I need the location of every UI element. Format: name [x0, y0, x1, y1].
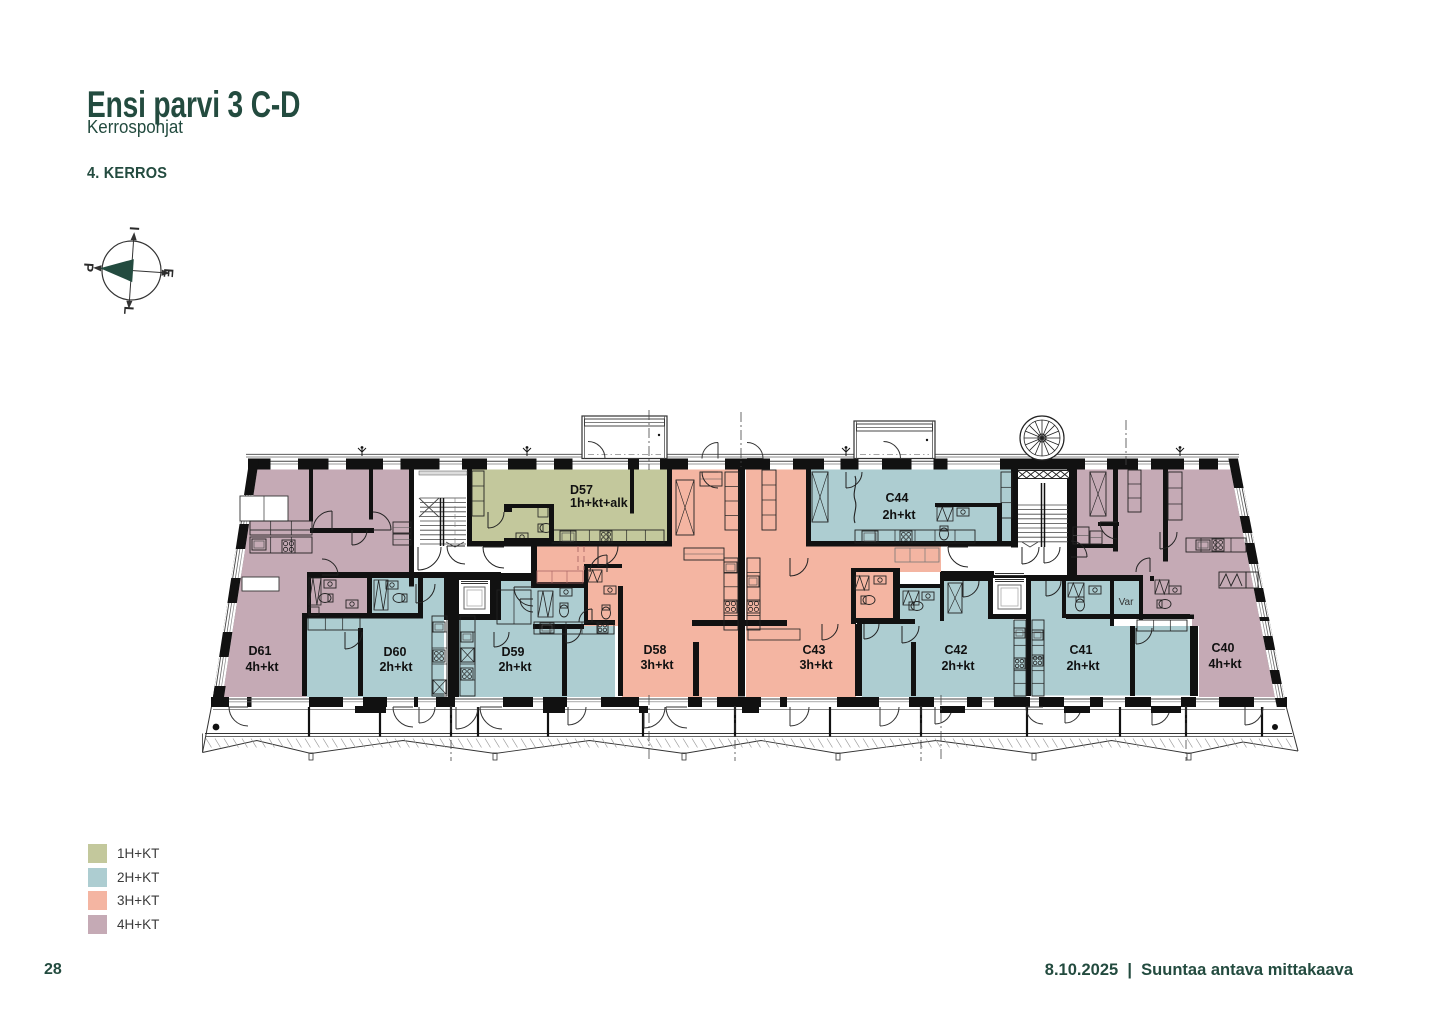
svg-text:D60: D60 [384, 645, 407, 659]
svg-text:P: P [81, 262, 97, 272]
svg-text:2h+kt: 2h+kt [498, 660, 532, 674]
svg-text:3h+kt: 3h+kt [799, 658, 833, 672]
svg-text:2h+kt: 2h+kt [1066, 659, 1100, 673]
svg-text:4h+kt: 4h+kt [1208, 657, 1242, 671]
svg-text:D61: D61 [249, 644, 272, 658]
svg-text:4h+kt: 4h+kt [245, 660, 279, 674]
svg-text:I: I [127, 226, 142, 231]
svg-text:2h+kt: 2h+kt [941, 659, 975, 673]
svg-text:L: L [121, 306, 137, 315]
svg-text:C44: C44 [886, 491, 909, 505]
svg-text:2h+kt: 2h+kt [882, 508, 916, 522]
svg-text:3h+kt: 3h+kt [640, 658, 674, 672]
svg-text:E: E [161, 268, 177, 278]
svg-text:C43: C43 [803, 643, 826, 657]
svg-text:C41: C41 [1070, 643, 1093, 657]
svg-text:2h+kt: 2h+kt [379, 660, 413, 674]
svg-text:D57: D57 [570, 483, 593, 497]
svg-text:1h+kt+alk: 1h+kt+alk [570, 496, 628, 510]
svg-text:C40: C40 [1212, 641, 1235, 655]
svg-text:D59: D59 [502, 645, 525, 659]
svg-text:D58: D58 [644, 643, 667, 657]
svg-text:C42: C42 [945, 643, 968, 657]
svg-text:Var: Var [1119, 597, 1134, 608]
